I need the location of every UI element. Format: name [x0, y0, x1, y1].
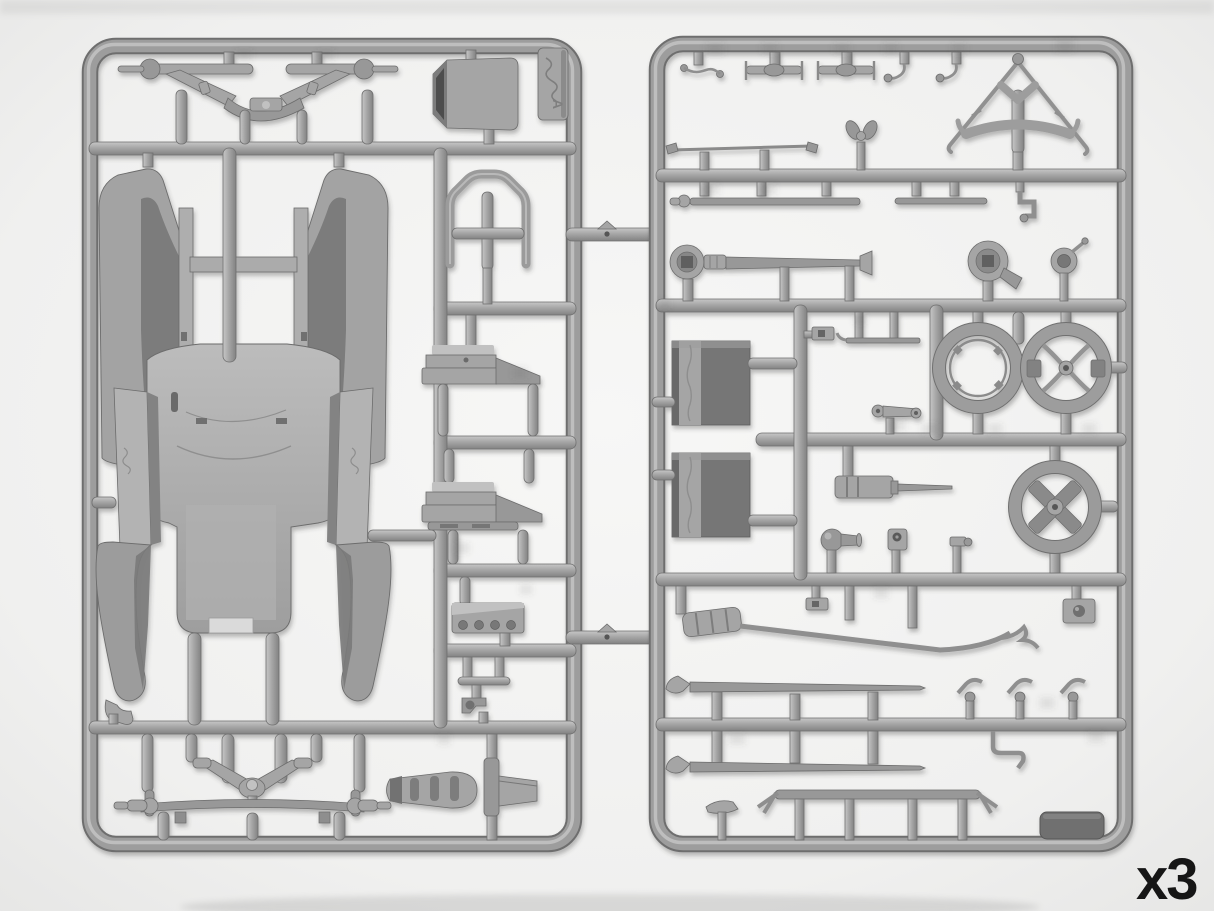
battery-box: [1040, 812, 1104, 839]
feeder-rail: [223, 148, 236, 362]
top-edge-shade: [0, 0, 1214, 14]
quantity-label: x3: [1136, 847, 1197, 911]
sprue-letter-tag: A: [538, 48, 568, 120]
tag-letter: A: [550, 99, 566, 109]
sprue-photo-canvas: A: [0, 0, 1214, 911]
sprue-photo: A: [0, 0, 1214, 911]
